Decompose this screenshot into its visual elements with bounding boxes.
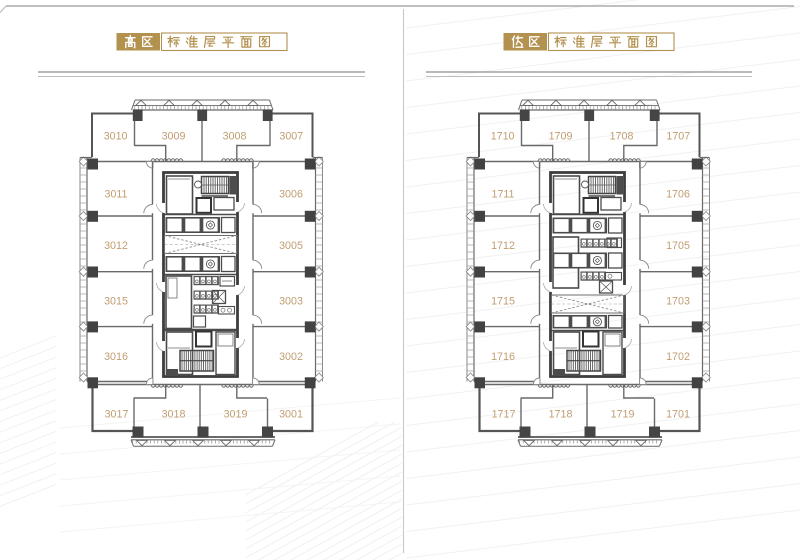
svg-text:1709: 1709: [549, 131, 573, 143]
svg-text:3009: 3009: [162, 131, 186, 143]
svg-text:1718: 1718: [549, 409, 573, 421]
svg-text:3006: 3006: [279, 189, 303, 201]
svg-text:3018: 3018: [162, 409, 186, 421]
svg-text:3003: 3003: [279, 296, 303, 308]
svg-text:1712: 1712: [491, 240, 515, 252]
svg-text:1717: 1717: [492, 409, 516, 421]
svg-text:1705: 1705: [666, 240, 690, 252]
svg-text:1715: 1715: [491, 296, 515, 308]
svg-text:1707: 1707: [666, 131, 690, 143]
svg-text:1710: 1710: [491, 131, 515, 143]
svg-text:3017: 3017: [105, 409, 129, 421]
svg-text:3007: 3007: [279, 131, 303, 143]
svg-text:1711: 1711: [492, 189, 515, 201]
svg-text:1703: 1703: [666, 296, 690, 308]
svg-text:3001: 3001: [279, 409, 303, 421]
svg-text:1708: 1708: [610, 131, 634, 143]
svg-text:3010: 3010: [104, 131, 128, 143]
svg-text:3002: 3002: [279, 351, 303, 363]
svg-text:3015: 3015: [104, 296, 128, 308]
svg-text:1716: 1716: [491, 351, 515, 363]
svg-text:1702: 1702: [666, 351, 690, 363]
svg-text:3008: 3008: [223, 131, 247, 143]
svg-text:3011: 3011: [105, 189, 128, 201]
svg-text:3012: 3012: [104, 240, 128, 252]
svg-text:1706: 1706: [666, 189, 690, 201]
svg-text:3016: 3016: [104, 351, 128, 363]
svg-text:3005: 3005: [279, 240, 303, 252]
svg-text:3019: 3019: [224, 409, 248, 421]
svg-text:1701: 1701: [666, 409, 690, 421]
svg-text:1719: 1719: [611, 409, 635, 421]
